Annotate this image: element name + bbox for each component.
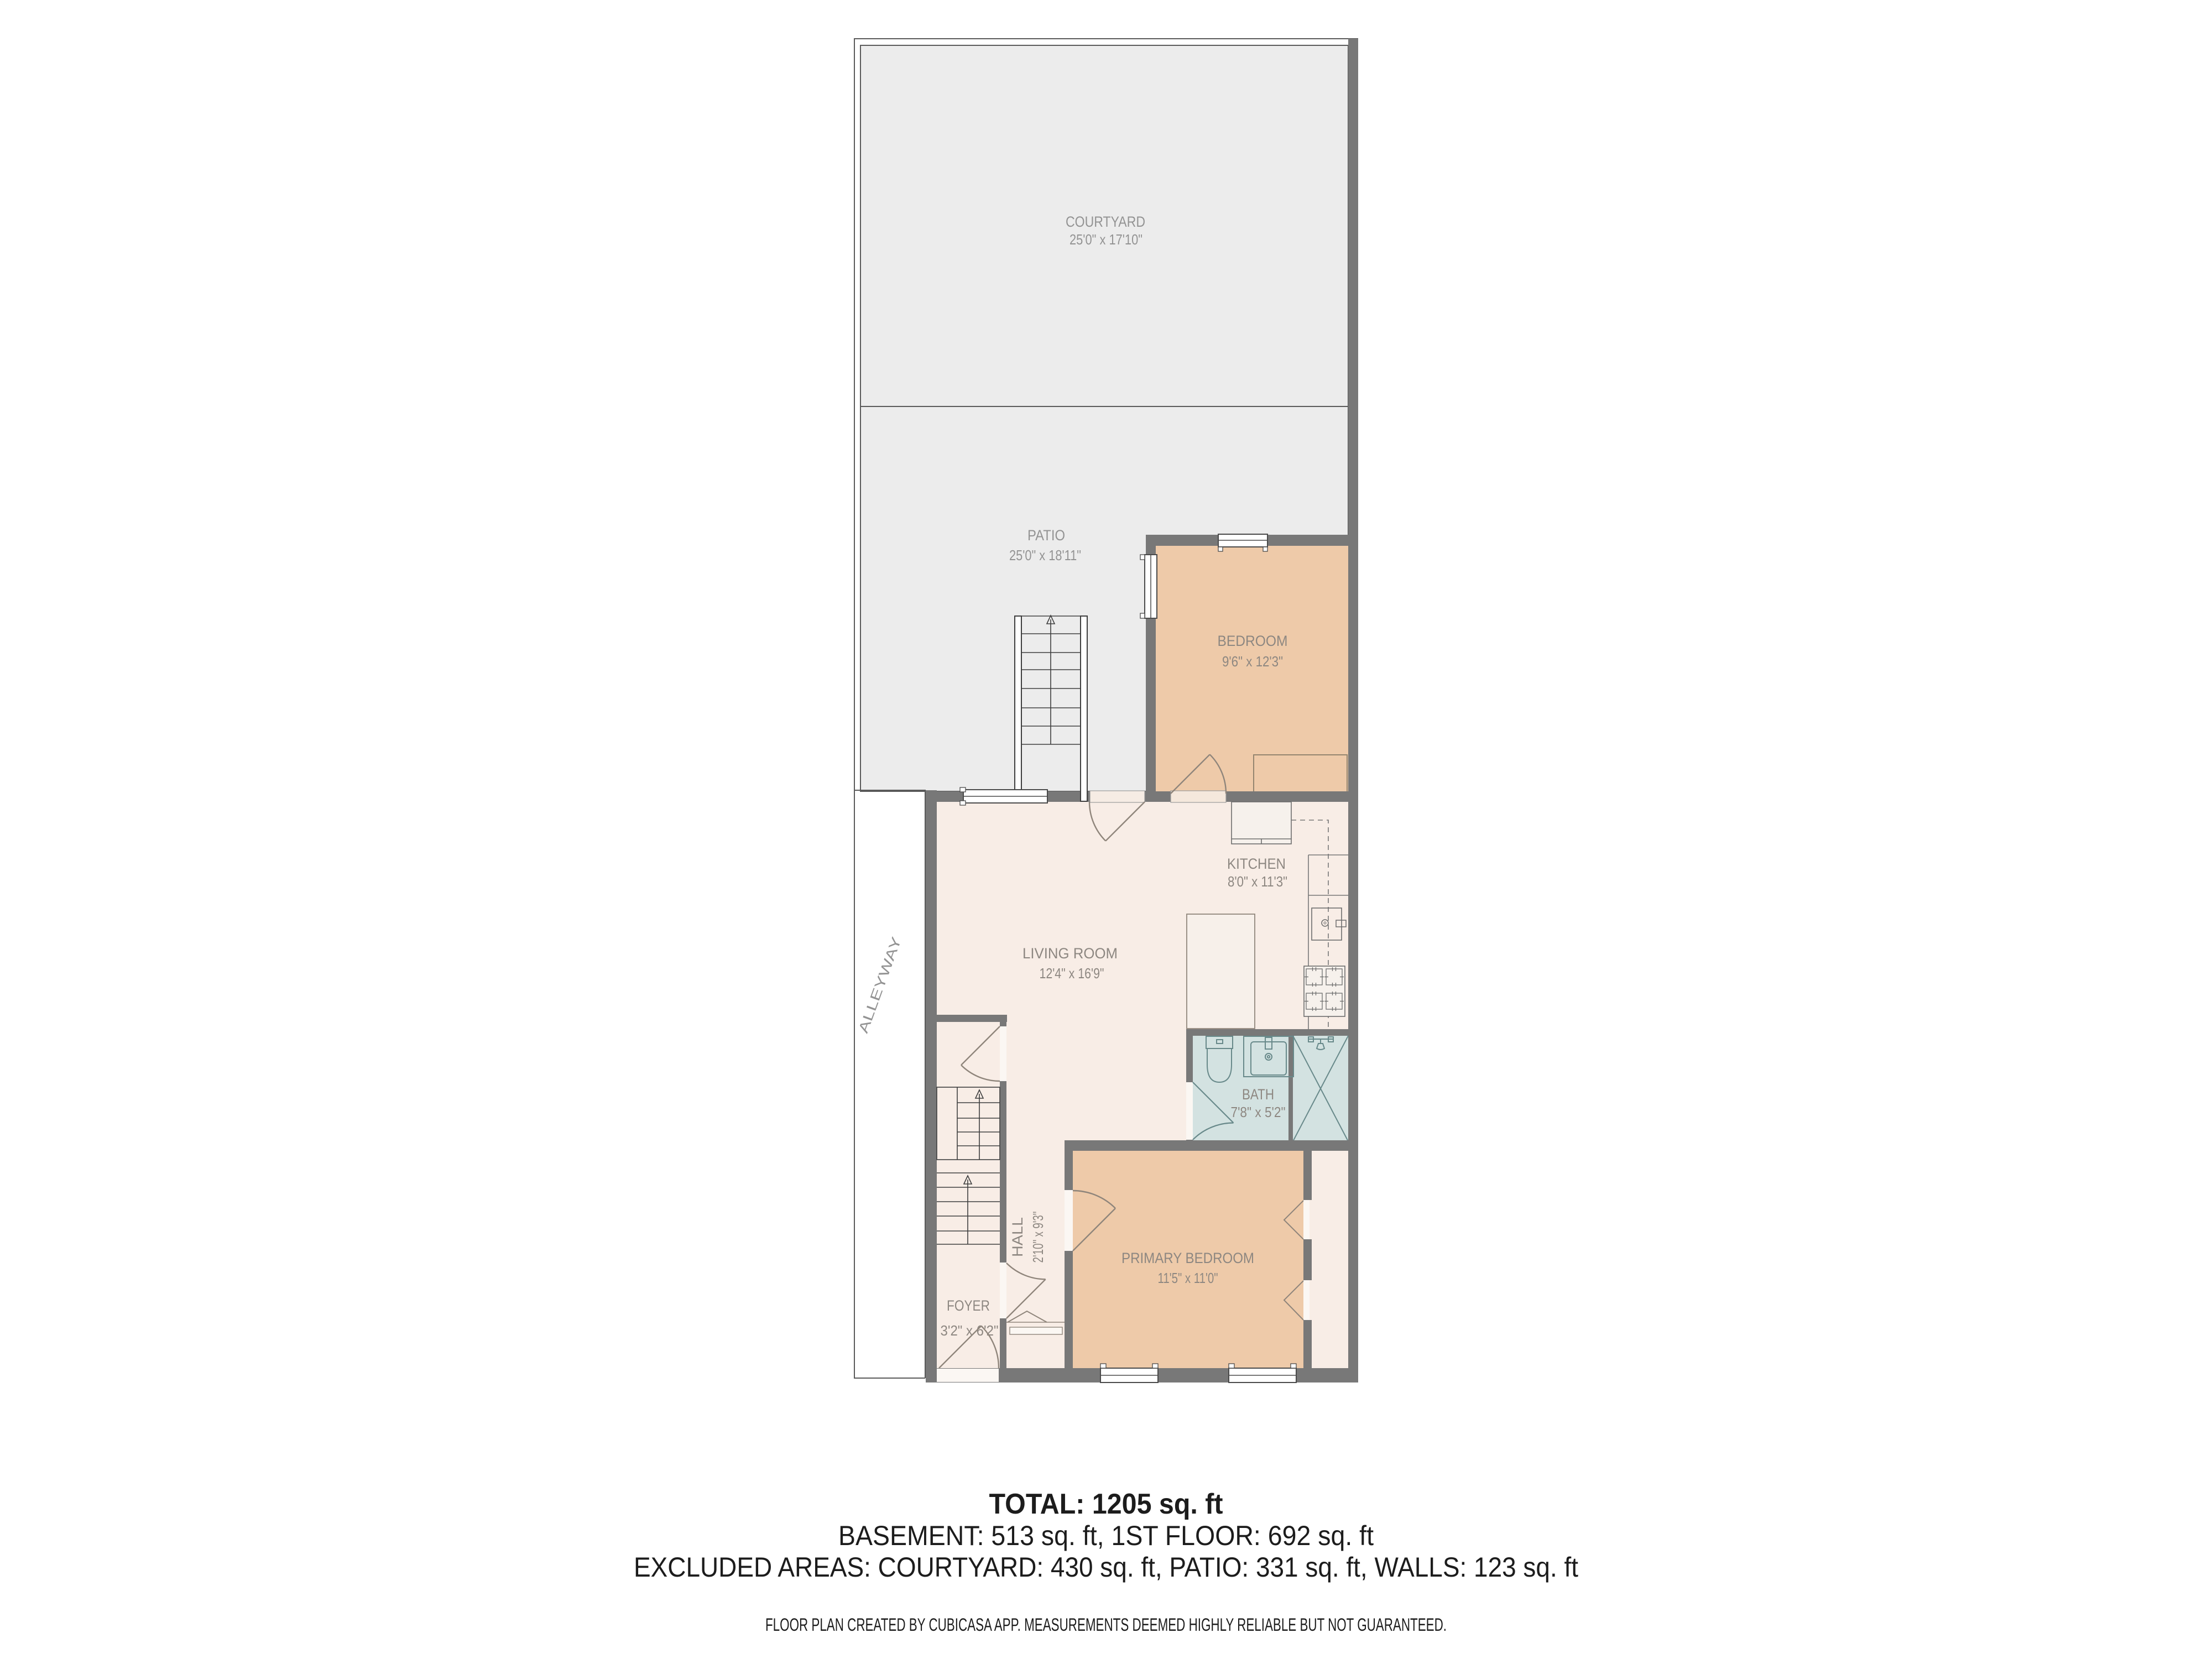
svg-text:PRIMARY BEDROOM: PRIMARY BEDROOM: [1121, 1250, 1254, 1266]
svg-text:7'8" x 5'2": 7'8" x 5'2": [1231, 1104, 1286, 1120]
svg-text:COURTYARD: COURTYARD: [1066, 213, 1145, 230]
svg-text:9'6" x 12'3": 9'6" x 12'3": [1222, 653, 1283, 670]
svg-text:EXCLUDED AREAS: COURTYARD: 430: EXCLUDED AREAS: COURTYARD: 430 sq. ft, P…: [634, 1552, 1578, 1583]
svg-text:BATH: BATH: [1242, 1086, 1274, 1103]
svg-text:BEDROOM: BEDROOM: [1218, 633, 1288, 649]
svg-text:25'0" x 18'11": 25'0" x 18'11": [1009, 547, 1081, 564]
svg-text:12'4" x 16'9": 12'4" x 16'9": [1040, 965, 1104, 982]
svg-text:FLOOR PLAN CREATED BY CUBICASA: FLOOR PLAN CREATED BY CUBICASA APP. MEAS…: [765, 1615, 1447, 1635]
svg-text:FOYER: FOYER: [947, 1297, 990, 1314]
svg-text:11'5" x 11'0": 11'5" x 11'0": [1158, 1270, 1218, 1286]
svg-text:8'0" x 11'3": 8'0" x 11'3": [1228, 873, 1287, 890]
svg-text:PATIO: PATIO: [1027, 527, 1065, 544]
svg-text:BASEMENT: 513 sq. ft, 1ST FLOO: BASEMENT: 513 sq. ft, 1ST FLOOR: 692 sq.…: [838, 1520, 1374, 1551]
svg-text:KITCHEN: KITCHEN: [1227, 855, 1286, 872]
svg-text:HALL: HALL: [1009, 1217, 1026, 1257]
svg-text:2'10" x 9'3": 2'10" x 9'3": [1030, 1212, 1046, 1263]
svg-text:TOTAL: 1205 sq. ft: TOTAL: 1205 sq. ft: [989, 1488, 1223, 1520]
svg-text:25'0" x 17'10": 25'0" x 17'10": [1070, 231, 1142, 248]
svg-text:LIVING ROOM: LIVING ROOM: [1022, 945, 1118, 962]
